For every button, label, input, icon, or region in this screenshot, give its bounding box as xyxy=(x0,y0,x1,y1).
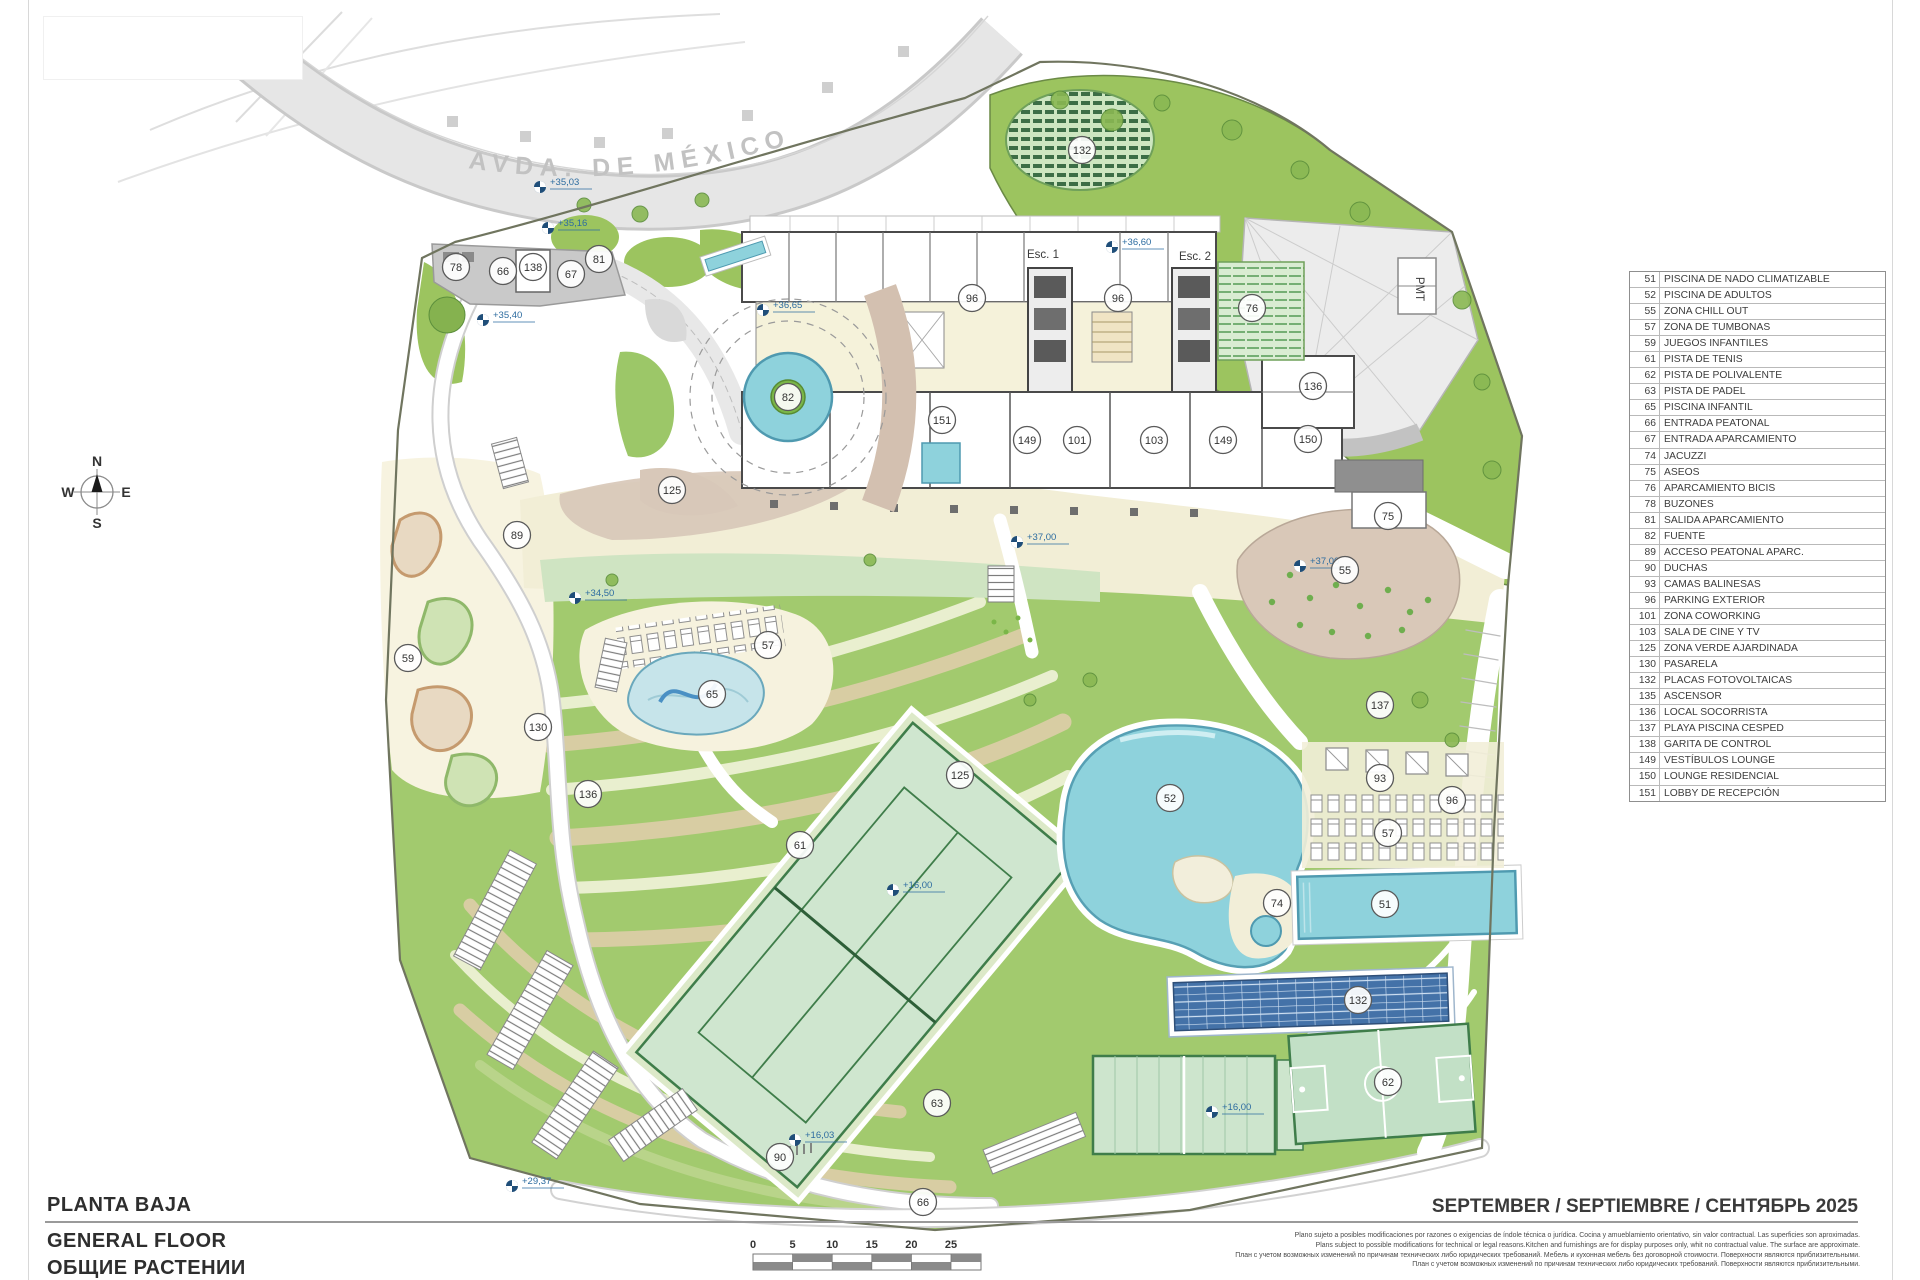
legend-label: VESTÍBULOS LOUNGE xyxy=(1660,753,1885,768)
plan-marker-66: 66 xyxy=(910,1189,937,1216)
plan-marker-138: 138 xyxy=(520,254,547,281)
legend-row: 57ZONA DE TUMBONAS xyxy=(1630,319,1885,335)
plan-label-pmt: PMT xyxy=(1413,277,1425,301)
legend-row: 150LOUNGE RESIDENCIAL xyxy=(1630,768,1885,784)
plan-marker-149: 149 xyxy=(1210,427,1237,454)
legend-number: 59 xyxy=(1630,336,1660,351)
legend-label: PLAYA PISCINA CESPED xyxy=(1660,721,1885,736)
legend-row: 136LOCAL SOCORRISTA xyxy=(1630,704,1885,720)
svg-text:+16,03: +16,03 xyxy=(805,1130,834,1141)
scale-bar: 0510152025 xyxy=(745,1236,1007,1278)
legend-label: CAMAS BALINESAS xyxy=(1660,577,1885,592)
svg-text:66: 66 xyxy=(497,266,509,278)
plan-marker-51: 51 xyxy=(1372,891,1399,918)
plan-marker-55: 55 xyxy=(1332,557,1359,584)
legend-row: 137PLAYA PISCINA CESPED xyxy=(1630,720,1885,736)
legend-row: 135ASCENSOR xyxy=(1630,688,1885,704)
legend-label: LOBBY DE RECEPCIÓN xyxy=(1660,786,1885,801)
svg-text:+36,65: +36,65 xyxy=(773,300,802,311)
legend-number: 75 xyxy=(1630,465,1660,480)
plan-marker-96: 96 xyxy=(1439,787,1466,814)
svg-text:136: 136 xyxy=(579,789,597,801)
plan-marker-96: 96 xyxy=(1105,285,1132,312)
svg-text:62: 62 xyxy=(1382,1077,1394,1089)
svg-text:52: 52 xyxy=(1164,793,1176,805)
svg-text:103: 103 xyxy=(1145,435,1163,447)
svg-text:67: 67 xyxy=(565,269,577,281)
legend-label: LOCAL SOCORRISTA xyxy=(1660,705,1885,720)
legend-label: ENTRADA APARCAMIENTO xyxy=(1660,432,1885,447)
legend-row: 149VESTÍBULOS LOUNGE xyxy=(1630,752,1885,768)
svg-text:93: 93 xyxy=(1374,773,1386,785)
legend-number: 76 xyxy=(1630,481,1660,496)
legend-number: 66 xyxy=(1630,416,1660,431)
sheet-border-left xyxy=(28,0,29,1280)
svg-text:78: 78 xyxy=(450,262,462,274)
legend-label: ASCENSOR xyxy=(1660,689,1885,704)
svg-text:+29,37: +29,37 xyxy=(522,1176,551,1187)
compass-north-label: N xyxy=(92,453,102,469)
svg-text:+35,03: +35,03 xyxy=(550,177,579,188)
legend-number: 89 xyxy=(1630,545,1660,560)
legend-label: ZONA COWORKING xyxy=(1660,609,1885,624)
legend-label: PISCINA INFANTIL xyxy=(1660,400,1885,415)
scale-label: 15 xyxy=(866,1239,878,1251)
svg-text:55: 55 xyxy=(1339,565,1351,577)
legend-label: GARITA DE CONTROL xyxy=(1660,737,1885,752)
plan-label-esc-2: Esc. 2 xyxy=(1179,251,1211,263)
svg-text:96: 96 xyxy=(966,293,978,305)
plan-marker-150: 150 xyxy=(1295,426,1322,453)
plan-marker-93: 93 xyxy=(1367,765,1394,792)
disclaimer-line: Plano sujeto a posibles modificaciones p… xyxy=(1000,1231,1860,1241)
legend-row: 81SALIDA APARCAMIENTO xyxy=(1630,512,1885,528)
plan-marker-81: 81 xyxy=(586,246,613,273)
legend-label: PISCINA DE NADO CLIMATIZABLE xyxy=(1660,272,1885,287)
legend-number: 136 xyxy=(1630,705,1660,720)
elevation-marker: +35,40 xyxy=(477,310,535,326)
svg-text:57: 57 xyxy=(1382,828,1394,840)
legend-number: 150 xyxy=(1630,769,1660,784)
legend-number: 130 xyxy=(1630,657,1660,672)
plan-marker-103: 103 xyxy=(1141,427,1168,454)
svg-text:61: 61 xyxy=(794,840,806,852)
legend-label: SALA DE CINE Y TV xyxy=(1660,625,1885,640)
plan-marker-82: 82 xyxy=(775,384,802,411)
svg-text:63: 63 xyxy=(931,1098,943,1110)
svg-text:151: 151 xyxy=(933,415,951,427)
svg-text:+37,00: +37,00 xyxy=(1027,532,1056,543)
plan-marker-96: 96 xyxy=(959,285,986,312)
legend-row: 63PISTA DE PADEL xyxy=(1630,383,1885,399)
legend-row: 93CAMAS BALINESAS xyxy=(1630,576,1885,592)
legend-row: 132PLACAS FOTOVOLTAICAS xyxy=(1630,672,1885,688)
svg-text:89: 89 xyxy=(511,530,523,542)
legend-label: ACCESO PEATONAL APARC. xyxy=(1660,545,1885,560)
lap-pool xyxy=(1297,871,1517,939)
legend-label: ZONA CHILL OUT xyxy=(1660,304,1885,319)
compass-rose: N S W E xyxy=(61,453,130,531)
plan-marker-101: 101 xyxy=(1064,427,1091,454)
title-planta-baja: PLANTA BAJA xyxy=(47,1194,191,1217)
plan-marker-90: 90 xyxy=(767,1144,794,1171)
legend-row: 65PISCINA INFANTIL xyxy=(1630,399,1885,415)
title-general-floor: GENERAL FLOOR xyxy=(47,1230,226,1253)
logo-placeholder xyxy=(43,16,303,80)
disclaimer-text: Plano sujeto a posibles modificaciones p… xyxy=(1000,1231,1860,1270)
legend-number: 149 xyxy=(1630,753,1660,768)
sheet-border-right xyxy=(1892,0,1893,1280)
plan-marker-78: 78 xyxy=(443,254,470,281)
plan-marker-149: 149 xyxy=(1014,427,1041,454)
legend-number: 81 xyxy=(1630,513,1660,528)
legend-number: 101 xyxy=(1630,609,1660,624)
legend-number: 78 xyxy=(1630,497,1660,512)
legend-label: PISCINA DE ADULTOS xyxy=(1660,288,1885,303)
legend-number: 90 xyxy=(1630,561,1660,576)
svg-text:+35,40: +35,40 xyxy=(493,310,522,321)
legend-row: 125ZONA VERDE AJARDINADA xyxy=(1630,640,1885,656)
legend-row: 82FUENTE xyxy=(1630,528,1885,544)
svg-text:125: 125 xyxy=(951,770,969,782)
stair-core-1 xyxy=(1028,268,1072,392)
plan-marker-66: 66 xyxy=(490,258,517,285)
legend-number: 138 xyxy=(1630,737,1660,752)
legend-number: 74 xyxy=(1630,449,1660,464)
svg-text:51: 51 xyxy=(1379,899,1391,911)
sun-lounger-zone xyxy=(1302,742,1504,868)
scale-labels: 0510152025 xyxy=(750,1239,957,1251)
legend-label: JACUZZI xyxy=(1660,449,1885,464)
svg-text:59: 59 xyxy=(402,653,414,665)
legend-row: 67ENTRADA APARCAMIENTO xyxy=(1630,431,1885,447)
svg-text:66: 66 xyxy=(917,1197,929,1209)
disclaimer-line: План с учетом возможных изменений по при… xyxy=(1000,1260,1860,1270)
disclaimer-line: Plans subject to possible modifications … xyxy=(1000,1241,1860,1251)
legend-number: 103 xyxy=(1630,625,1660,640)
plan-marker-59: 59 xyxy=(395,645,422,672)
plan-marker-136: 136 xyxy=(1300,373,1327,400)
plan-marker-125: 125 xyxy=(947,762,974,789)
date-stamp: SEPTEMBER / SEPTIEMBRE / СЕНТЯБРЬ 2025 xyxy=(1432,1196,1858,1218)
svg-text:96: 96 xyxy=(1112,293,1124,305)
legend-label: FUENTE xyxy=(1660,529,1885,544)
svg-text:136: 136 xyxy=(1304,381,1322,393)
legend-number: 61 xyxy=(1630,352,1660,367)
legend-row: 62PISTA DE POLIVALENTE xyxy=(1630,367,1885,383)
plan-marker-151: 151 xyxy=(929,407,956,434)
legend-row: 101ZONA COWORKING xyxy=(1630,608,1885,624)
scale-label: 5 xyxy=(790,1239,796,1251)
scale-label: 0 xyxy=(750,1239,756,1251)
avenue-road: AVDA. DE MÉXICO xyxy=(235,16,1002,203)
svg-text:125: 125 xyxy=(663,485,681,497)
legend-row: 66ENTRADA PEATONAL xyxy=(1630,415,1885,431)
legend-label: ZONA VERDE AJARDINADA xyxy=(1660,641,1885,656)
svg-text:150: 150 xyxy=(1299,434,1317,446)
svg-text:+16,00: +16,00 xyxy=(903,880,932,891)
legend-row: 75ASEOS xyxy=(1630,464,1885,480)
disclaimer-line: План с учетом возможных изменений по при… xyxy=(1000,1251,1860,1261)
plan-marker-67: 67 xyxy=(558,261,585,288)
compass-south-label: S xyxy=(92,515,101,531)
plan-marker-89: 89 xyxy=(504,522,531,549)
plan-marker-74: 74 xyxy=(1264,890,1291,917)
svg-text:138: 138 xyxy=(524,262,542,274)
legend-label: PLACAS FOTOVOLTAICAS xyxy=(1660,673,1885,688)
plan-marker-57: 57 xyxy=(755,632,782,659)
legend-label: PISTA DE PADEL xyxy=(1660,384,1885,399)
legend-number: 57 xyxy=(1630,320,1660,335)
legend-number: 93 xyxy=(1630,577,1660,592)
svg-text:82: 82 xyxy=(782,392,794,404)
legend-number: 137 xyxy=(1630,721,1660,736)
drawing-sheet: AVDA. DE MÉXICO xyxy=(0,0,1920,1280)
svg-text:81: 81 xyxy=(593,254,605,266)
legend-label: PASARELA xyxy=(1660,657,1885,672)
legend-row: 151LOBBY DE RECEPCIÓN xyxy=(1630,785,1885,801)
pergola xyxy=(1335,460,1423,492)
plan-marker-137: 137 xyxy=(1367,692,1394,719)
svg-text:132: 132 xyxy=(1349,995,1367,1007)
kids-pool xyxy=(628,653,764,735)
legend-number: 52 xyxy=(1630,288,1660,303)
scale-label: 20 xyxy=(905,1239,917,1251)
title-russian: ОБЩИЕ РАСТЕНИИ xyxy=(47,1257,246,1280)
svg-text:74: 74 xyxy=(1271,898,1283,910)
plan-marker-52: 52 xyxy=(1157,785,1184,812)
scale-label: 10 xyxy=(826,1239,838,1251)
legend-row: 76APARCAMIENTO BICIS xyxy=(1630,480,1885,496)
legend-number: 82 xyxy=(1630,529,1660,544)
svg-text:132: 132 xyxy=(1073,145,1091,157)
svg-text:149: 149 xyxy=(1214,435,1232,447)
plan-marker-76: 76 xyxy=(1239,295,1266,322)
legend-row: 55ZONA CHILL OUT xyxy=(1630,303,1885,319)
svg-text:75: 75 xyxy=(1382,511,1394,523)
legend-number: 63 xyxy=(1630,384,1660,399)
legend-label: BUZONES xyxy=(1660,497,1885,512)
legend-row: 59JUEGOS INFANTILES xyxy=(1630,335,1885,351)
svg-text:76: 76 xyxy=(1246,303,1258,315)
legend-label: PARKING EXTERIOR xyxy=(1660,593,1885,608)
legend-number: 65 xyxy=(1630,400,1660,415)
legend-number: 62 xyxy=(1630,368,1660,383)
plan-marker-65: 65 xyxy=(699,681,726,708)
legend-label: ASEOS xyxy=(1660,465,1885,480)
svg-text:90: 90 xyxy=(774,1152,786,1164)
plan-marker-63: 63 xyxy=(924,1090,951,1117)
legend-label: DUCHAS xyxy=(1660,561,1885,576)
compass-west-label: W xyxy=(61,484,75,500)
legend-number: 51 xyxy=(1630,272,1660,287)
legend-label: ZONA DE TUMBONAS xyxy=(1660,320,1885,335)
plan-marker-132: 132 xyxy=(1069,137,1096,164)
legend-label: LOUNGE RESIDENCIAL xyxy=(1660,769,1885,784)
legend-number: 125 xyxy=(1630,641,1660,656)
svg-text:+34,50: +34,50 xyxy=(585,588,614,599)
svg-text:96: 96 xyxy=(1446,795,1458,807)
legend-number: 67 xyxy=(1630,432,1660,447)
stair-core-2 xyxy=(1172,268,1216,392)
legend-number: 151 xyxy=(1630,786,1660,801)
legend-number: 135 xyxy=(1630,689,1660,704)
plan-marker-75: 75 xyxy=(1375,503,1402,530)
legend-row: 96PARKING EXTERIOR xyxy=(1630,592,1885,608)
svg-text:101: 101 xyxy=(1068,435,1086,447)
plan-marker-130: 130 xyxy=(525,714,552,741)
plan-marker-132: 132 xyxy=(1345,987,1372,1014)
jacuzzi-pool xyxy=(1251,916,1281,946)
plan-marker-61: 61 xyxy=(787,832,814,859)
title-separator-line xyxy=(45,1221,1858,1223)
legend-row: 51PISCINA DE NADO CLIMATIZABLE xyxy=(1630,272,1885,287)
plan-marker-57: 57 xyxy=(1375,820,1402,847)
legend-row: 138GARITA DE CONTROL xyxy=(1630,736,1885,752)
svg-text:57: 57 xyxy=(762,640,774,652)
plan-marker-62: 62 xyxy=(1375,1069,1402,1096)
plan-label-esc-1: Esc. 1 xyxy=(1027,249,1059,261)
plan-marker-136: 136 xyxy=(575,781,602,808)
legend-label: PISTA DE TENIS xyxy=(1660,352,1885,367)
legend-table: 51PISCINA DE NADO CLIMATIZABLE52PISCINA … xyxy=(1629,271,1886,802)
svg-text:149: 149 xyxy=(1018,435,1036,447)
svg-text:65: 65 xyxy=(706,689,718,701)
svg-text:130: 130 xyxy=(529,722,547,734)
svg-text:+16,00: +16,00 xyxy=(1222,1102,1251,1113)
legend-row: 103SALA DE CINE Y TV xyxy=(1630,624,1885,640)
legend-row: 74JACUZZI xyxy=(1630,448,1885,464)
legend-row: 130PASARELA xyxy=(1630,656,1885,672)
legend-row: 90DUCHAS xyxy=(1630,560,1885,576)
legend-row: 61PISTA DE TENIS xyxy=(1630,351,1885,367)
scale-label: 25 xyxy=(945,1239,957,1251)
legend-row: 78BUZONES xyxy=(1630,496,1885,512)
legend-label: PISTA DE POLIVALENTE xyxy=(1660,368,1885,383)
legend-label: APARCAMIENTO BICIS xyxy=(1660,481,1885,496)
svg-text:+36,60: +36,60 xyxy=(1122,237,1151,248)
plan-marker-125: 125 xyxy=(659,477,686,504)
svg-text:137: 137 xyxy=(1371,700,1389,712)
svg-text:+35,16: +35,16 xyxy=(558,218,587,229)
legend-label: ENTRADA PEATONAL xyxy=(1660,416,1885,431)
legend-number: 96 xyxy=(1630,593,1660,608)
legend-row: 89ACCESO PEATONAL APARC. xyxy=(1630,544,1885,560)
legend-row: 52PISCINA DE ADULTOS xyxy=(1630,287,1885,303)
compass-east-label: E xyxy=(121,484,130,500)
legend-number: 132 xyxy=(1630,673,1660,688)
legend-label: SALIDA APARCAMIENTO xyxy=(1660,513,1885,528)
legend-label: JUEGOS INFANTILES xyxy=(1660,336,1885,351)
legend-number: 55 xyxy=(1630,304,1660,319)
